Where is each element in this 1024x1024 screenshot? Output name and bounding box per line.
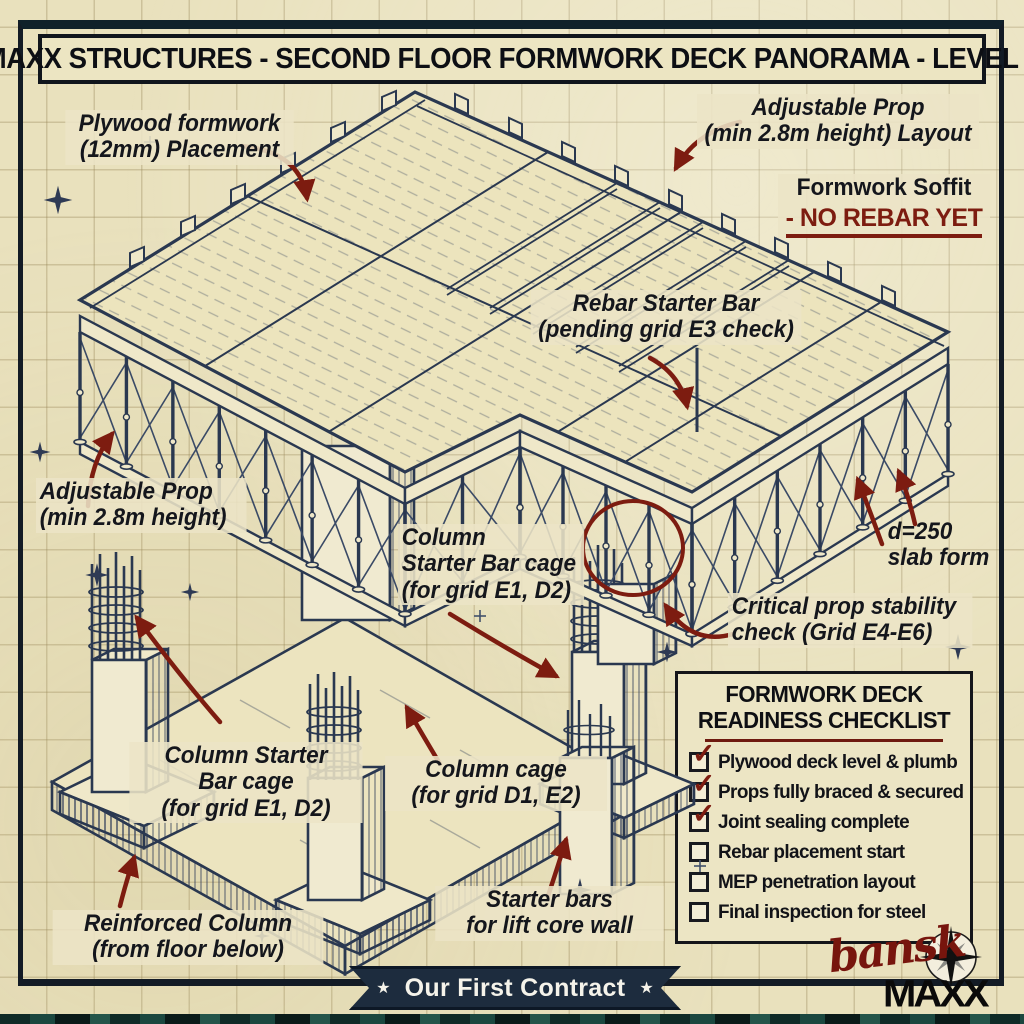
bottom-decorative-strip — [0, 1014, 1024, 1024]
label-column-starter-cage-bottom: Column Starter Bar cage (for grid E1, D2… — [129, 742, 362, 823]
title-bar: MAXX STRUCTURES - SECOND FLOOR FORMWORK … — [38, 34, 986, 84]
banner-text: Our First Contract — [405, 974, 626, 1003]
maxx-logo: MAXX — [883, 973, 987, 1016]
label-plywood-formwork: Plywood formwork (12mm) Placement — [65, 110, 293, 165]
star-icon: ★ — [376, 978, 390, 998]
soffit-text: Formwork Soffit — [783, 174, 984, 202]
label-reinforced-column: Reinforced Column (from floor below) — [53, 910, 324, 965]
banner-ribbon: ★ Our First Contract ★ — [349, 966, 681, 1010]
label-rebar-starter-bar: Rebar Starter Bar (pending grid E3 check… — [531, 290, 802, 345]
label-starter-bars-lift-core: Starter bars for lift core wall — [435, 886, 663, 941]
label-formwork-soffit: Formwork Soffit - NO REBAR YET — [778, 174, 990, 238]
label-critical-prop-check: Critical prop stability check (Grid E4-E… — [728, 593, 972, 648]
page-title: MAXX STRUCTURES - SECOND FLOOR FORMWORK … — [0, 43, 1024, 76]
label-adjustable-prop-left: Adjustable Prop (min 2.8m height) — [36, 478, 247, 533]
star-icon: ★ — [639, 978, 653, 998]
label-column-cage: Column cage (for grid D1, E2) — [385, 756, 607, 811]
label-column-starter-cage-mid: Column Starter Bar cage (for grid E1, D2… — [398, 524, 584, 605]
no-rebar-warning: - NO REBAR YET — [786, 204, 983, 238]
label-slab-form: d=250 slab form — [884, 518, 1004, 573]
label-adjustable-prop-layout: Adjustable Prop (min 2.8m height) Layout — [697, 94, 979, 149]
